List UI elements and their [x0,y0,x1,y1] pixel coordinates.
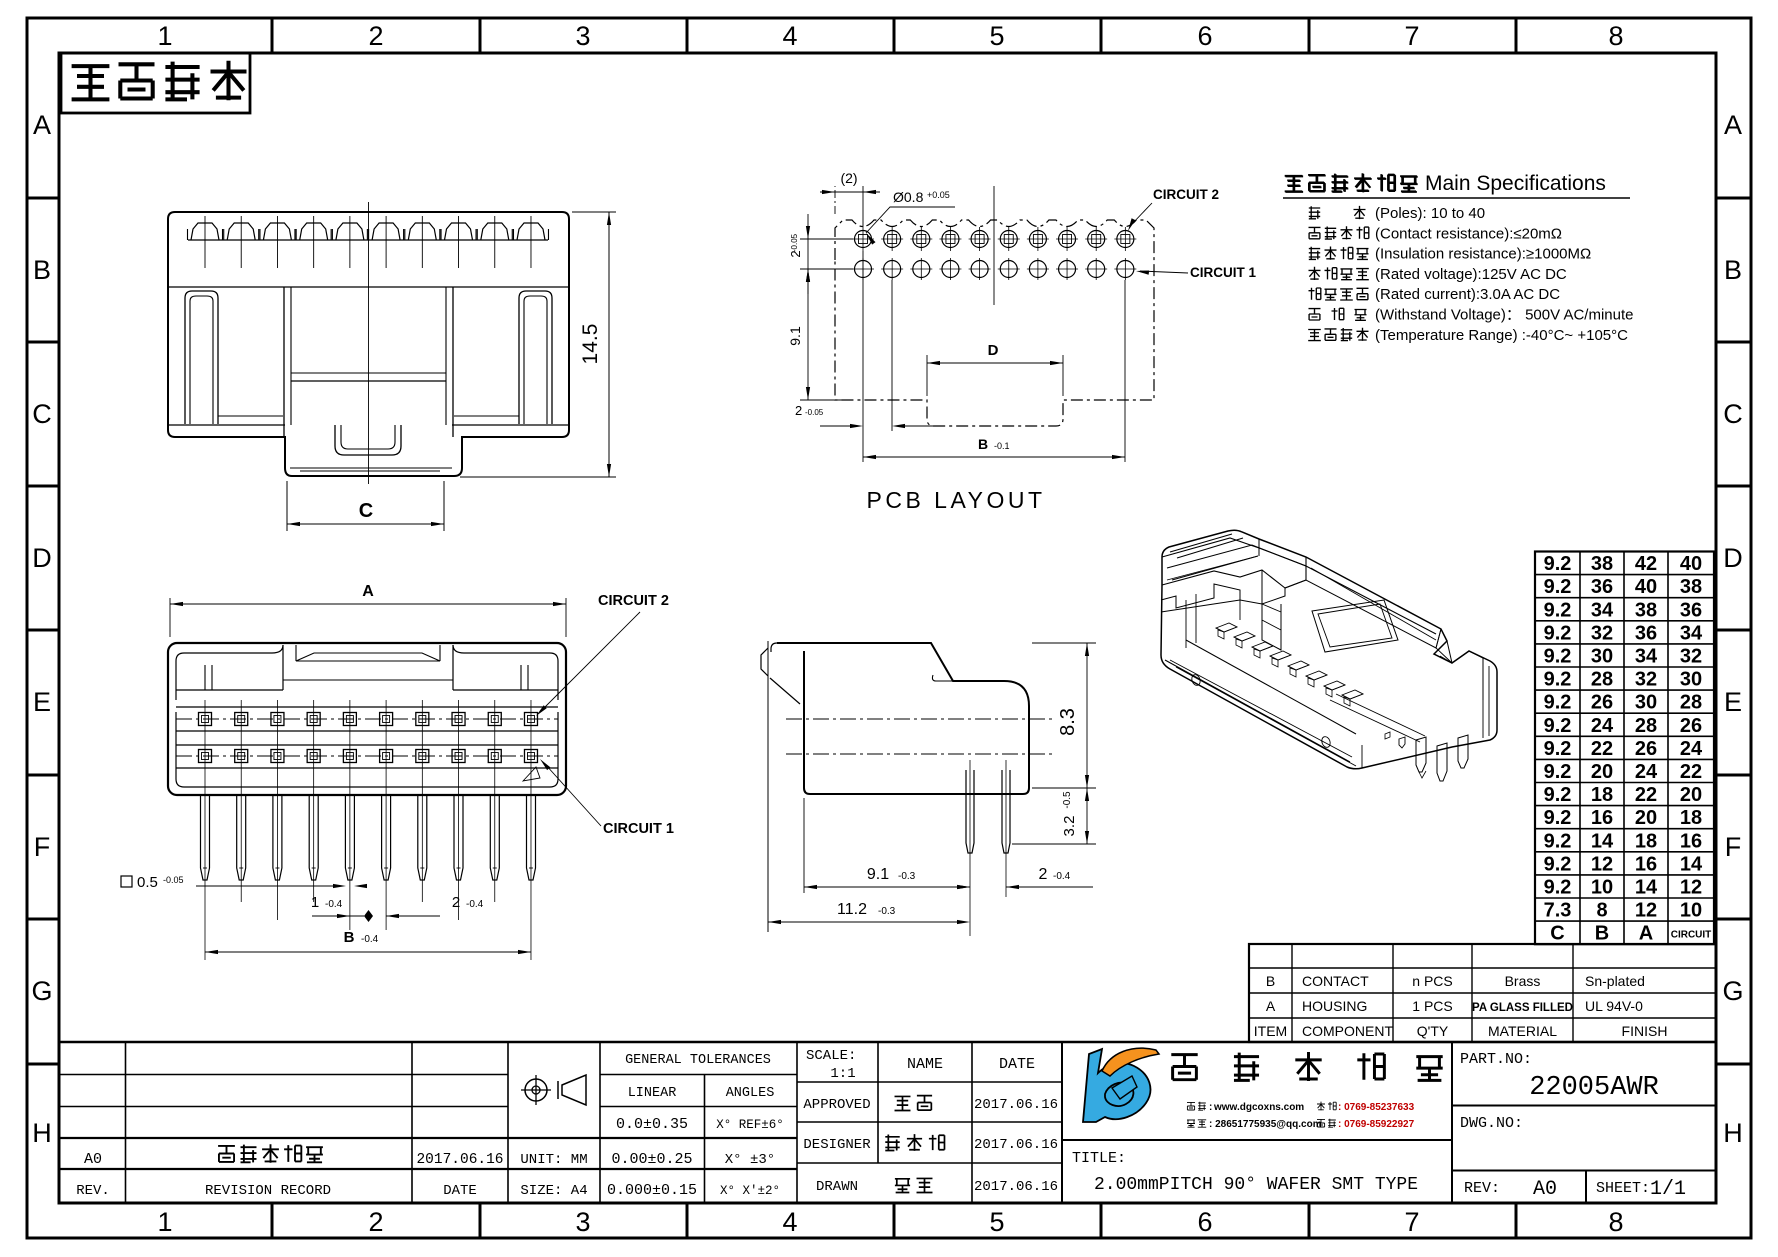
svg-text:APPROVED: APPROVED [803,1097,870,1113]
svg-text:24: 24 [1591,715,1614,737]
svg-text:-0.3: -0.3 [898,871,916,882]
svg-text:5: 5 [989,1207,1004,1237]
svg-text:F: F [34,832,51,862]
svg-text:Sn-plated: Sn-plated [1585,973,1645,989]
svg-text:7: 7 [1404,1207,1419,1237]
svg-text:6: 6 [1197,1207,1212,1237]
svg-text:9.2: 9.2 [1544,853,1572,875]
svg-text:12: 12 [1591,853,1613,875]
svg-text:SIZE: A4: SIZE: A4 [520,1183,587,1199]
svg-text:2017.06.16: 2017.06.16 [416,1152,503,1168]
svg-text:9.2: 9.2 [1544,715,1572,737]
svg-text:A: A [33,110,51,140]
svg-text:B: B [1724,255,1742,285]
svg-text:-0.3: -0.3 [878,906,896,917]
svg-text:-0.4: -0.4 [1053,871,1071,882]
svg-text:9.2: 9.2 [1544,622,1572,644]
svg-text:DATE: DATE [999,1056,1035,1073]
svg-text:12: 12 [1635,900,1657,922]
svg-text:www.dgcoxns.com: www.dgcoxns.com [1213,1102,1304,1113]
svg-text:2.00mmPITCH 90° WAFER SMT TYPE: 2.00mmPITCH 90° WAFER SMT TYPE [1094,1175,1418,1195]
svg-text:B: B [1595,923,1609,945]
svg-text:8.3: 8.3 [1057,708,1079,736]
svg-text:22: 22 [1635,784,1657,806]
svg-text:8: 8 [1596,900,1607,922]
svg-text:CIRCUIT 2: CIRCUIT 2 [598,593,669,609]
svg-text:E: E [1724,687,1742,717]
svg-text:-0.4: -0.4 [325,899,343,910]
svg-text:14: 14 [1635,876,1658,898]
svg-text:(Temperature Range) :-40°C~ +1: (Temperature Range) :-40°C~ +105°C [1375,327,1628,344]
svg-text:(Withstand Voltage)： 500V AC/m: (Withstand Voltage)： 500V AC/minute [1375,307,1633,324]
svg-text:A0: A0 [1533,1178,1557,1201]
svg-text:CIRCUIT 1: CIRCUIT 1 [603,821,674,837]
svg-text:SHEET:: SHEET: [1596,1180,1650,1197]
svg-text:32: 32 [1591,622,1613,644]
svg-text:9.2: 9.2 [1544,599,1572,621]
svg-text:28: 28 [1591,669,1613,691]
svg-text:8: 8 [1608,21,1623,51]
svg-text:C: C [32,399,52,429]
svg-text:14.5: 14.5 [579,324,602,365]
svg-text:12: 12 [1680,876,1702,898]
svg-text:G: G [1722,976,1743,1006]
svg-text:3: 3 [575,1207,590,1237]
svg-text:9.2: 9.2 [1544,576,1572,598]
svg-text:30: 30 [1680,669,1702,691]
svg-text:9.1: 9.1 [867,866,889,883]
svg-text:2017.06.16: 2017.06.16 [974,1137,1058,1153]
svg-text:DESIGNER: DESIGNER [803,1137,871,1153]
svg-text:C: C [1723,399,1743,429]
svg-text:A0: A0 [84,1151,102,1168]
svg-text:28: 28 [1680,692,1702,714]
svg-text:32: 32 [1680,645,1702,667]
svg-text:H: H [32,1118,52,1148]
svg-text:GENERAL TOLERANCES: GENERAL TOLERANCES [625,1053,771,1068]
svg-text:36: 36 [1591,576,1613,598]
svg-text:UL 94V-0: UL 94V-0 [1585,998,1643,1014]
svg-text:22005AWR: 22005AWR [1529,1073,1659,1103]
svg-text:2017.06.16: 2017.06.16 [974,1179,1058,1195]
svg-text:A: A [362,583,374,600]
svg-text:PA GLASS FILLED: PA GLASS FILLED [1472,1002,1573,1014]
svg-text:9.2: 9.2 [1544,876,1572,898]
svg-text:9.2: 9.2 [1544,761,1572,783]
svg-text:38: 38 [1591,553,1613,575]
svg-text:NAME: NAME [907,1056,943,1073]
svg-text:A: A [1266,998,1276,1014]
svg-text:LINEAR: LINEAR [628,1086,677,1101]
svg-text:18: 18 [1591,784,1613,806]
svg-text:TITLE:: TITLE: [1072,1150,1126,1167]
svg-text:C: C [359,500,373,522]
svg-text:34: 34 [1635,645,1658,667]
svg-text:ANGLES: ANGLES [726,1086,775,1101]
svg-text:40: 40 [1635,576,1657,598]
svg-text:20: 20 [1680,784,1702,806]
svg-text:G: G [31,976,52,1006]
svg-text:REVISION RECORD: REVISION RECORD [205,1183,331,1199]
svg-text:2: 2 [368,1207,383,1237]
svg-text:0.5: 0.5 [137,874,158,891]
svg-text:9.2: 9.2 [1544,807,1572,829]
svg-text:40: 40 [1680,553,1702,575]
svg-text:2: 2 [452,894,460,911]
svg-text:26: 26 [1680,715,1702,737]
svg-text:Ø0.8: Ø0.8 [893,189,924,205]
svg-text:Q'TY: Q'TY [1417,1023,1449,1039]
svg-text:-0.05: -0.05 [790,233,799,252]
svg-text:7: 7 [1404,21,1419,51]
svg-text:9.2: 9.2 [1544,784,1572,806]
svg-text:9.2: 9.2 [1544,830,1572,852]
svg-text:n PCS: n PCS [1412,973,1452,989]
svg-text:9.2: 9.2 [1544,553,1572,575]
svg-text:36: 36 [1680,599,1702,621]
svg-text:SCALE:: SCALE: [806,1048,856,1064]
svg-text:UNIT: MM: UNIT: MM [520,1152,587,1168]
svg-text:-0.05: -0.05 [163,875,184,885]
svg-text:9.2: 9.2 [1544,738,1572,760]
svg-text:3: 3 [575,21,590,51]
svg-text:REV:: REV: [1464,1180,1500,1197]
svg-text::: : [1209,1102,1212,1113]
svg-text:: 28651775935@qq.com: : 28651775935@qq.com [1209,1119,1322,1130]
svg-text:B: B [33,255,51,285]
svg-text:DWG.NO:: DWG.NO: [1460,1115,1523,1132]
svg-text:9.2: 9.2 [1544,645,1572,667]
svg-text:B: B [344,929,355,946]
svg-text:-0.4: -0.4 [466,899,484,910]
svg-text:(Rated current):3.0A AC DC: (Rated current):3.0A AC DC [1375,286,1560,303]
svg-text:: 0769-85922927: : 0769-85922927 [1338,1119,1415,1130]
svg-text:REV.: REV. [76,1183,110,1199]
svg-text:(Contact resistance):≤20mΩ: (Contact resistance):≤20mΩ [1375,225,1562,242]
svg-text:A: A [1639,923,1653,945]
svg-text:3.2: 3.2 [1061,816,1078,837]
svg-text:D: D [988,342,999,359]
svg-text:26: 26 [1635,738,1657,760]
svg-text:24: 24 [1680,738,1703,760]
svg-text:DATE: DATE [443,1183,477,1199]
svg-text:36: 36 [1635,622,1657,644]
svg-text:X° REF±6°: X° REF±6° [716,1118,784,1132]
svg-text:(Insulation resistance):≥1000M: (Insulation resistance):≥1000MΩ [1375,246,1591,263]
svg-text:24: 24 [1635,761,1658,783]
svg-text:1:1: 1:1 [830,1066,855,1082]
svg-text:Brass: Brass [1505,973,1541,989]
svg-text:38: 38 [1680,576,1702,598]
svg-text:22: 22 [1680,761,1702,783]
svg-text:(Poles): 10 to 40: (Poles): 10 to 40 [1375,205,1485,222]
svg-text:DRAWN: DRAWN [816,1179,858,1195]
svg-text:2017.06.16: 2017.06.16 [974,1097,1058,1113]
svg-text:E: E [33,687,51,717]
svg-text:9.1: 9.1 [787,326,803,346]
svg-text:5: 5 [989,21,1004,51]
svg-text:1 PCS: 1 PCS [1412,998,1452,1014]
svg-text:B: B [978,436,988,452]
svg-text:34: 34 [1591,599,1614,621]
svg-text:-0.4: -0.4 [361,934,379,945]
svg-text:0.00±0.25: 0.00±0.25 [611,1151,692,1168]
svg-text:1: 1 [157,1207,172,1237]
svg-text:20: 20 [1635,807,1657,829]
svg-text:32: 32 [1635,669,1657,691]
svg-text:10: 10 [1591,876,1613,898]
svg-text:X° ±3°: X° ±3° [725,1152,775,1168]
svg-text:D: D [1723,543,1743,573]
svg-text:28: 28 [1635,715,1657,737]
svg-text:4: 4 [782,1207,797,1237]
svg-text:18: 18 [1635,830,1657,852]
svg-text:2: 2 [795,403,802,418]
svg-text:CIRCUIT: CIRCUIT [1671,930,1712,941]
svg-text:(Rated voltage):125V AC DC: (Rated voltage):125V AC DC [1375,266,1567,283]
svg-text:: 0769-85237633: : 0769-85237633 [1338,1102,1415,1113]
svg-text:-0.5: -0.5 [1062,791,1073,809]
svg-text:MATERIAL: MATERIAL [1488,1023,1557,1039]
svg-text:16: 16 [1680,830,1702,852]
svg-text:-0.1: -0.1 [994,441,1010,451]
svg-text:0.0±0.35: 0.0±0.35 [616,1116,688,1133]
svg-text:1: 1 [311,894,319,911]
svg-text:16: 16 [1591,807,1613,829]
svg-text:14: 14 [1591,830,1614,852]
svg-text:0.000±0.15: 0.000±0.15 [607,1182,697,1199]
svg-text:9.2: 9.2 [1544,669,1572,691]
svg-text:38: 38 [1635,599,1657,621]
svg-text:PART.NO:: PART.NO: [1460,1051,1532,1068]
svg-text:2: 2 [1039,866,1048,883]
svg-text:X° X'±2°: X° X'±2° [720,1184,780,1198]
svg-text:C: C [1550,923,1564,945]
svg-text:1/1: 1/1 [1650,1178,1686,1201]
svg-text:HOUSING: HOUSING [1302,998,1367,1014]
svg-text:14: 14 [1680,853,1703,875]
svg-text:26: 26 [1591,692,1613,714]
svg-text:CONTACT: CONTACT [1302,973,1369,989]
svg-text:1: 1 [157,21,172,51]
svg-text:F: F [1725,832,1742,862]
svg-text:20: 20 [1591,761,1613,783]
svg-text:PCB LAYOUT: PCB LAYOUT [867,487,1046,513]
svg-text:11.2: 11.2 [837,901,867,918]
svg-text:H: H [1723,1118,1743,1148]
svg-text:CIRCUIT 1: CIRCUIT 1 [1190,265,1256,280]
svg-text:Main Specifications: Main Specifications [1425,172,1606,195]
svg-text:4: 4 [782,21,797,51]
svg-text:CIRCUIT 2: CIRCUIT 2 [1153,187,1219,202]
svg-text:8: 8 [1608,1207,1623,1237]
svg-text:6: 6 [1197,21,1212,51]
svg-text:30: 30 [1591,645,1613,667]
svg-text:A: A [1724,110,1742,140]
svg-text:7.3: 7.3 [1544,900,1572,922]
svg-text:22: 22 [1591,738,1613,760]
svg-text:+0.05: +0.05 [927,190,950,200]
svg-text:-0.05: -0.05 [805,408,824,417]
svg-text:ITEM: ITEM [1254,1023,1287,1039]
svg-text:42: 42 [1635,553,1657,575]
svg-text:2: 2 [368,21,383,51]
svg-text:34: 34 [1680,622,1703,644]
svg-text:D: D [32,543,52,573]
svg-text:30: 30 [1635,692,1657,714]
svg-text:B: B [1266,973,1275,989]
svg-text:16: 16 [1635,853,1657,875]
svg-text:9.2: 9.2 [1544,692,1572,714]
svg-text:10: 10 [1680,900,1702,922]
svg-text:COMPONENT: COMPONENT [1302,1023,1393,1039]
svg-text:FINISH: FINISH [1622,1023,1668,1039]
svg-text:18: 18 [1680,807,1702,829]
svg-text:(2): (2) [840,170,857,186]
